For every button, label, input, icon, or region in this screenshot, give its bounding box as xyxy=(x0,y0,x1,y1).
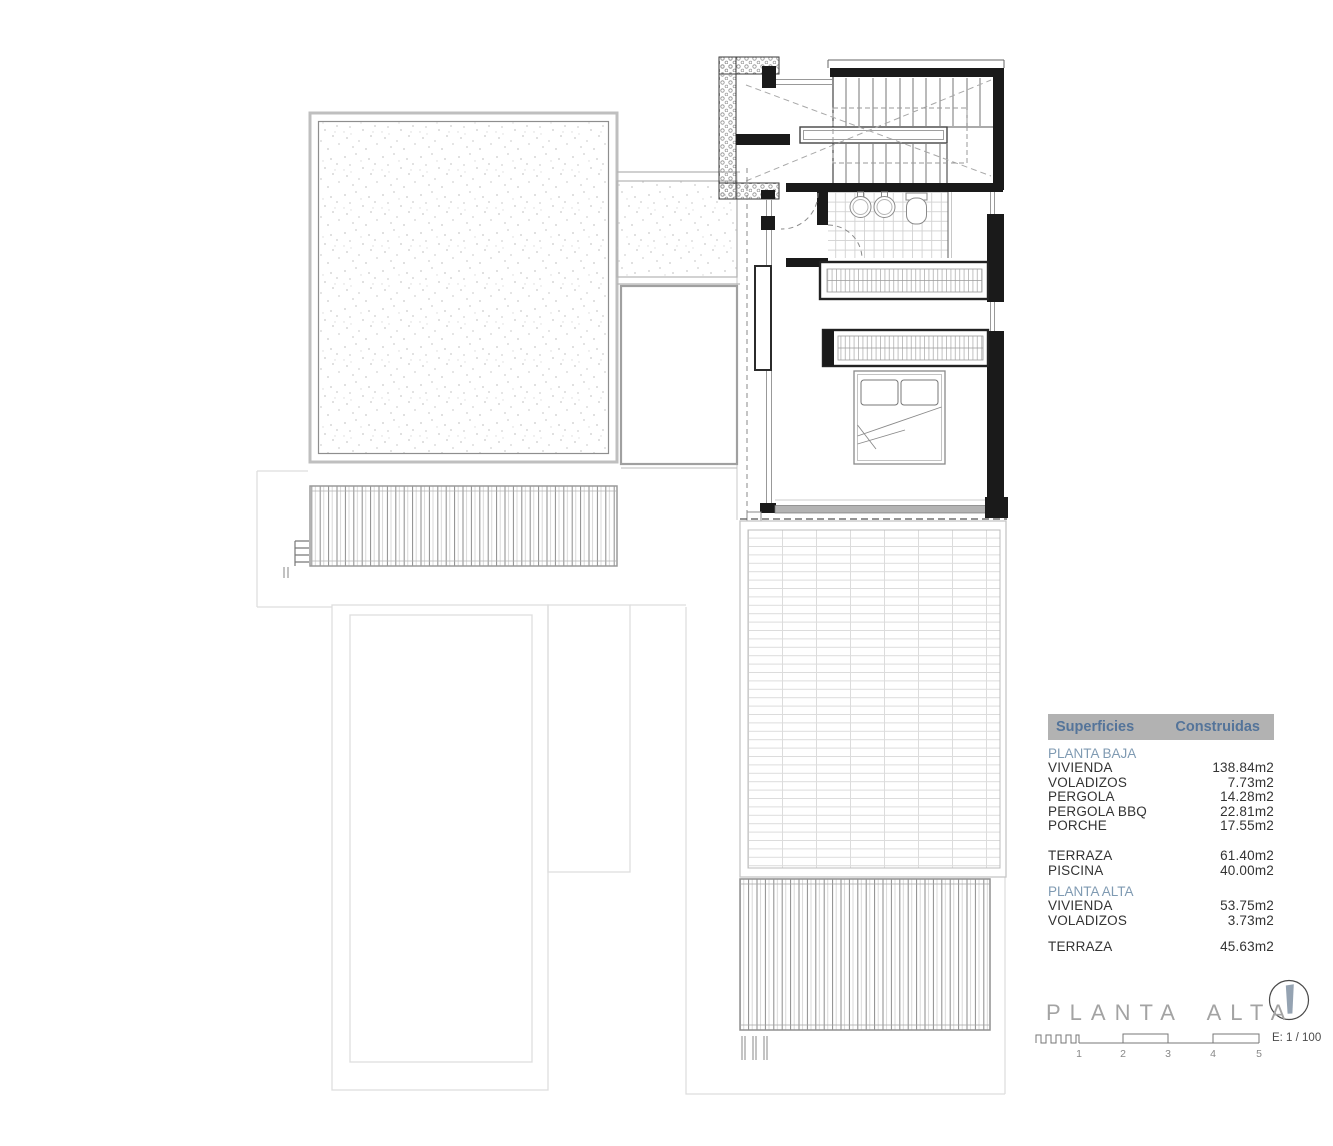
row-value: 138.84m2 xyxy=(1212,761,1274,776)
section-title-planta-baja: PLANTA BAJA xyxy=(1048,746,1274,761)
row-label: VIVIENDA xyxy=(1048,761,1113,776)
row-value: 22.81m2 xyxy=(1220,805,1274,820)
table-row: PORCHE 17.55m2 xyxy=(1048,819,1274,834)
section-title-planta-alta: PLANTA ALTA xyxy=(1048,884,1274,899)
row-value: 3.73m2 xyxy=(1228,914,1274,929)
row-label: TERRAZA xyxy=(1048,849,1112,864)
row-label: PISCINA xyxy=(1048,864,1103,879)
wardrobe-1 xyxy=(786,258,988,299)
stair-rail xyxy=(800,127,947,143)
table-row: VOLADIZOS 3.73m2 xyxy=(1048,914,1274,929)
scale-label: 4 xyxy=(1210,1048,1216,1060)
row-label: PERGOLA xyxy=(1048,790,1115,805)
row-label: PORCHE xyxy=(1048,819,1107,834)
table-row: TERRAZA 45.63m2 xyxy=(1048,940,1274,955)
row-value: 53.75m2 xyxy=(1220,899,1274,914)
row-label: VOLADIZOS xyxy=(1048,914,1127,929)
row-label: PERGOLA BBQ xyxy=(1048,805,1147,820)
table-row: VIVIENDA 138.84m2 xyxy=(1048,761,1274,776)
table-row: PERGOLA 14.28m2 xyxy=(1048,790,1274,805)
wardrobe-2 xyxy=(823,330,988,366)
floor-plan-drawing: 1 2 3 4 5 E: 1 / 100 xyxy=(0,0,1333,1146)
floor-plan-sheet: 1 2 3 4 5 E: 1 / 100 Superficies Constru… xyxy=(0,0,1333,1146)
row-value: 17.55m2 xyxy=(1220,819,1274,834)
row-value: 45.63m2 xyxy=(1220,940,1274,955)
table-row: TERRAZA 61.40m2 xyxy=(1048,849,1274,864)
row-label: VOLADIZOS xyxy=(1048,776,1127,791)
scale-label: 1 xyxy=(1076,1048,1082,1060)
bathroom xyxy=(781,192,952,258)
roof-opening-box xyxy=(621,286,737,468)
surfaces-table-header: Superficies Construidas xyxy=(1048,714,1274,740)
header-col-construidas: Construidas xyxy=(1175,719,1260,735)
scale-ratio-text: E: 1 / 100 xyxy=(1272,1032,1321,1044)
table-gap xyxy=(1048,834,1274,849)
east-wall xyxy=(987,192,1004,517)
scale-label: 3 xyxy=(1165,1048,1171,1060)
scale-numbers: 1 2 3 4 5 xyxy=(1076,1048,1262,1060)
header-col-superficies: Superficies xyxy=(1056,719,1134,735)
pergola-bottom xyxy=(740,879,990,1060)
wall-pier xyxy=(755,266,771,370)
exterior-steps-small xyxy=(742,1036,767,1060)
terrace-deck xyxy=(740,521,1006,877)
exterior-steps xyxy=(284,541,309,578)
scale-label: 5 xyxy=(1256,1048,1262,1060)
row-value: 7.73m2 xyxy=(1228,776,1274,791)
gravel-roof xyxy=(310,113,617,462)
south-glazing xyxy=(740,497,1008,521)
graphic-scale-bar xyxy=(1036,1034,1259,1043)
bed-icon xyxy=(854,371,945,464)
west-glazing xyxy=(747,168,776,519)
row-label: TERRAZA xyxy=(1048,940,1112,955)
plan-title: PLANTA ALTA xyxy=(1046,1000,1276,1026)
toilet-icon xyxy=(906,193,927,224)
stair-block xyxy=(719,57,1004,199)
row-value: 40.00m2 xyxy=(1220,864,1274,879)
table-row: VOLADIZOS 7.73m2 xyxy=(1048,776,1274,791)
table-row: VIVIENDA 53.75m2 xyxy=(1048,899,1274,914)
table-row: PERGOLA BBQ 22.81m2 xyxy=(1048,805,1274,820)
scale-label: 2 xyxy=(1120,1048,1126,1060)
stair-dashed-lines xyxy=(746,80,991,181)
surfaces-table: Superficies Construidas PLANTA BAJA VIVI… xyxy=(1048,714,1274,955)
row-value: 14.28m2 xyxy=(1220,790,1274,805)
table-row: PISCINA 40.00m2 xyxy=(1048,864,1274,879)
pergola-left xyxy=(284,486,617,578)
row-label: VIVIENDA xyxy=(1048,899,1113,914)
row-value: 61.40m2 xyxy=(1220,849,1274,864)
